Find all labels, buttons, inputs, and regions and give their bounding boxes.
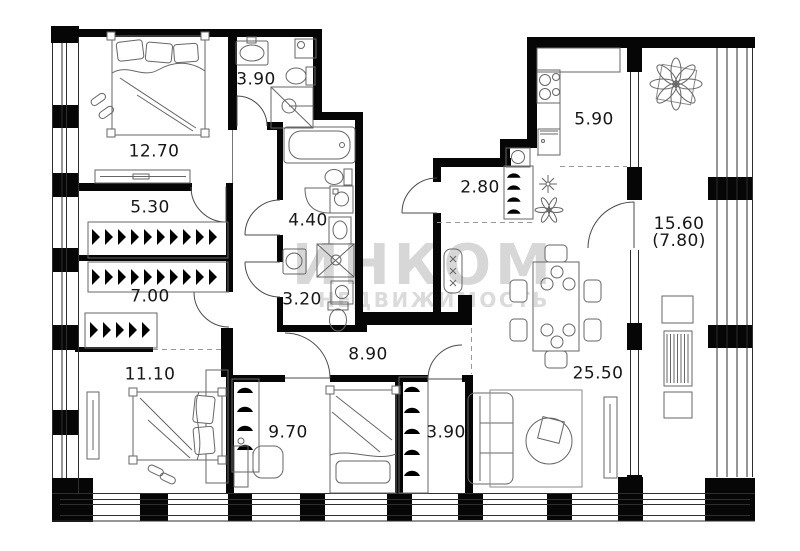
sink-3 (283, 249, 306, 274)
door-balcony (588, 202, 634, 248)
coffee-table (526, 417, 572, 464)
room-label-bedroom-1: 12.70 (129, 144, 180, 161)
floor-plan-canvas (0, 0, 800, 551)
room-label-balcony: 15.60 (7.80) (652, 216, 706, 250)
room-label-bathroom-2: 4.40 (288, 213, 327, 230)
door-bedroom-3 (285, 333, 330, 378)
balcony-table-2 (664, 392, 692, 418)
floor-plan-page: ИНКОМ НЕДВИЖИМОСТЬ (0, 0, 800, 551)
room-label-closet-2: 7.00 (130, 289, 169, 306)
balcony-table-1 (662, 296, 693, 323)
slippers-2 (147, 464, 176, 485)
utility-panel (444, 249, 462, 293)
radiator-shelf-1 (87, 392, 99, 459)
bed-double-1 (107, 32, 209, 137)
washing-machine-2 (330, 186, 353, 213)
room-label-bedroom-3: 9.70 (268, 425, 307, 442)
wardrobe-rack-closet-3 (399, 377, 428, 493)
door-swings (191, 96, 634, 379)
room-label-closet-1: 5.30 (130, 200, 169, 217)
toilet-1 (286, 67, 315, 85)
ceiling-light-icon (539, 175, 557, 193)
room-label-hallway: 8.90 (348, 347, 387, 364)
balcony-area-reduced: (7.80) (652, 233, 706, 250)
room-label-bathroom-1: 3.90 (236, 72, 275, 89)
slippers-1 (90, 92, 115, 120)
dresser-1 (95, 170, 190, 183)
sink-1 (236, 37, 268, 65)
washing-machine-3 (331, 281, 353, 304)
balcony-radiator (664, 331, 692, 386)
door-bathroom-2 (245, 200, 280, 235)
stove-1 (537, 70, 560, 103)
dining-chairs (510, 245, 601, 368)
dining-table (533, 262, 579, 351)
plant-large-icon (650, 58, 702, 110)
room-label-closet-3: 3.90 (426, 425, 465, 442)
kitchen-upper-cabinets (537, 48, 620, 72)
furniture-layer (85, 32, 702, 493)
rug-1 (490, 390, 582, 487)
tv-panel (604, 397, 617, 478)
door-closet-2 (194, 292, 229, 327)
entry-hanger-rack (504, 166, 533, 219)
room-label-entry-hall: 2.80 (460, 180, 499, 197)
room-label-bedroom-2: 11.10 (125, 367, 176, 384)
room-label-bathroom-3: 3.20 (282, 292, 321, 309)
room-label-kitchen: 5.90 (574, 112, 613, 129)
wardrobe-rail-1 (88, 222, 228, 258)
bathtub-1 (284, 127, 355, 163)
door-bathroom-3 (245, 262, 280, 297)
shower-3 (317, 244, 354, 277)
shower-1 (271, 87, 313, 128)
walls-layer (51, 26, 755, 522)
shower-2 (305, 188, 330, 213)
oven-1 (538, 129, 560, 155)
door-entry (402, 178, 437, 213)
wardrobe-rail-3 (85, 313, 157, 348)
bed-double-2 (129, 370, 228, 483)
plant-small-icon (535, 197, 563, 224)
room-label-living-room: 25.50 (573, 366, 624, 383)
desk-chair-1 (253, 446, 283, 478)
sink-2 (329, 217, 351, 244)
door-bathroom-1 (237, 96, 267, 126)
door-closet-3 (428, 345, 462, 379)
wardrobe-rack-bedroom-3 (232, 379, 259, 472)
door-closet-1 (191, 187, 226, 222)
toilet-2 (325, 169, 352, 185)
washing-machine-1 (295, 39, 316, 58)
bed-single-1 (326, 386, 400, 493)
